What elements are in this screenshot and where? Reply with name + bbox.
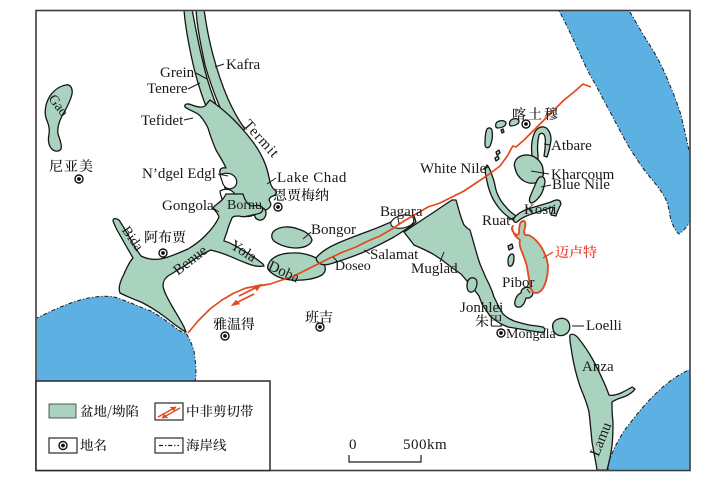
svg-text:Jonhlei: Jonhlei (460, 300, 503, 316)
svg-text:Anza: Anza (582, 359, 614, 375)
svg-text:Pibor: Pibor (502, 275, 535, 291)
svg-text:Atbare: Atbare (551, 138, 592, 154)
svg-text:Blue Nile: Blue Nile (552, 177, 610, 193)
svg-text:Tefidet: Tefidet (141, 113, 184, 129)
svg-text:White Nile: White Nile (420, 161, 487, 177)
svg-text:Lake Chad: Lake Chad (277, 170, 347, 186)
svg-text:Bongor: Bongor (311, 222, 356, 238)
svg-text:Ruat: Ruat (482, 213, 511, 229)
svg-text:Tenere: Tenere (147, 81, 188, 97)
svg-text:Kosti: Kosti (524, 202, 557, 218)
svg-text:Loelli: Loelli (586, 318, 622, 334)
svg-text:Grein: Grein (160, 65, 195, 81)
svg-text:Gongola: Gongola (162, 198, 214, 214)
svg-text:Mongala: Mongala (506, 327, 557, 342)
svg-text:Muglad: Muglad (411, 261, 458, 277)
svg-text:N’dgel Edgl: N’dgel Edgl (142, 166, 216, 182)
svg-text:500km: 500km (403, 437, 447, 453)
svg-text:Bornu: Bornu (227, 198, 262, 213)
svg-text:Kafra: Kafra (226, 57, 260, 73)
svg-text:0: 0 (349, 437, 357, 453)
svg-text:Bagara: Bagara (380, 204, 423, 220)
svg-text:Doseo: Doseo (335, 259, 371, 274)
